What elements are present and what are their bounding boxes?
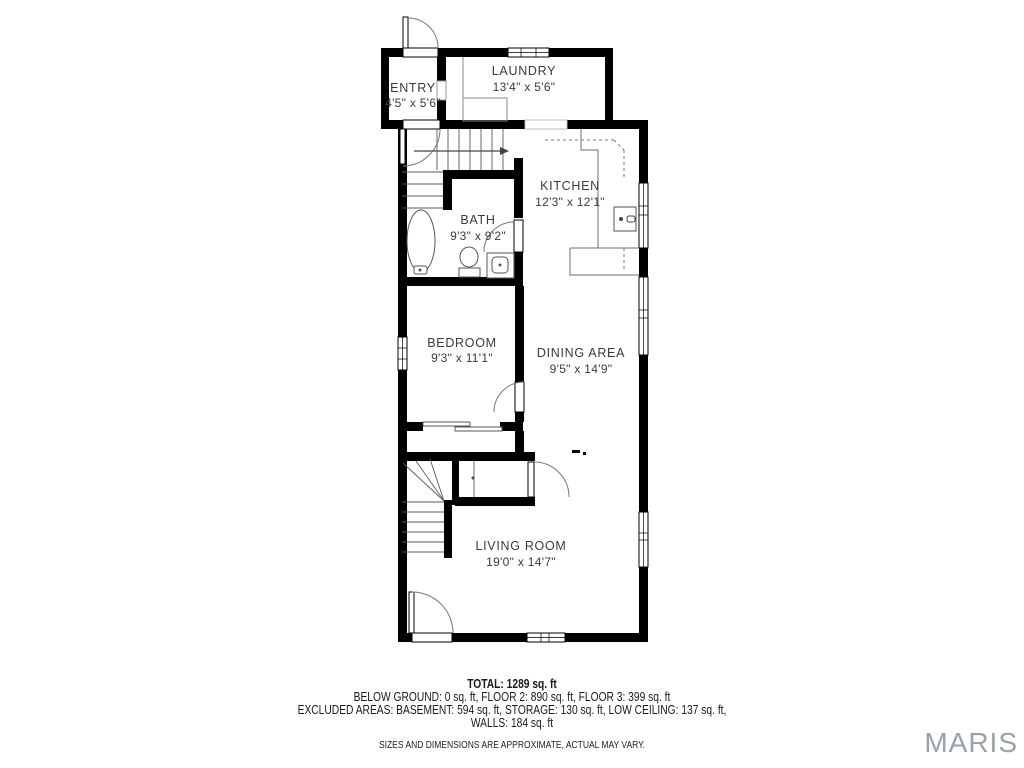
room-dims-entry: 4'5" x 5'6" [385,96,441,110]
front-door [409,592,453,642]
dining-window [639,277,648,355]
room-label-kitchen: KITCHEN [540,179,600,193]
bathtub-fixture [407,210,435,274]
bedroom-door [494,382,524,412]
kitchen-sink-fixture [614,207,636,231]
hall-closet [472,461,475,497]
stair-direction-arrow [414,147,509,155]
closet-door [528,462,569,497]
bedroom-closet-sliding-doors [423,422,502,431]
laundry-kitchen-opening [525,120,567,129]
floor-plan: ENTRY 4'5" x 5'6" LAUNDRY 13'4" x 5'6" K… [0,0,1024,768]
room-dims-laundry: 13'4" x 5'6" [493,80,556,94]
living-side-window [639,512,648,567]
room-dims-dining: 9'5" x 14'9" [550,362,613,376]
walls-area-text: WALLS: 184 sq. ft [92,717,932,730]
disclaimer-text: SIZES AND DIMENSIONS ARE APPROXIMATE, AC… [77,739,947,752]
room-label-living: LIVING ROOM [475,539,566,553]
living-staircase [402,459,444,552]
laundry-window [508,48,549,57]
area-summary: TOTAL: 1289 sq. ft BELOW GROUND: 0 sq. f… [0,678,1024,752]
room-label-entry: ENTRY [390,81,436,95]
room-label-bedroom: BEDROOM [427,336,497,350]
room-dims-kitchen: 12'3" x 12'1" [535,195,605,209]
room-dims-bedroom: 9'3" x 11'1" [431,351,493,365]
room-label-dining: DINING AREA [537,346,625,360]
toilet-fixture [459,247,480,277]
maris-watermark: MARIS [924,727,1018,759]
room-label-bath: BATH [460,213,495,227]
bedroom-window [398,337,407,370]
main-staircase [402,129,509,208]
room-dims-living: 19'0" x 14'7" [486,555,556,569]
living-bottom-window [527,633,565,642]
kitchen-window [639,183,648,248]
room-label-laundry: LAUNDRY [492,64,556,78]
bath-sink-fixture [487,253,514,278]
entry-exterior-door [403,17,438,57]
room-dims-bath: 9'3" x 9'2" [450,229,506,243]
